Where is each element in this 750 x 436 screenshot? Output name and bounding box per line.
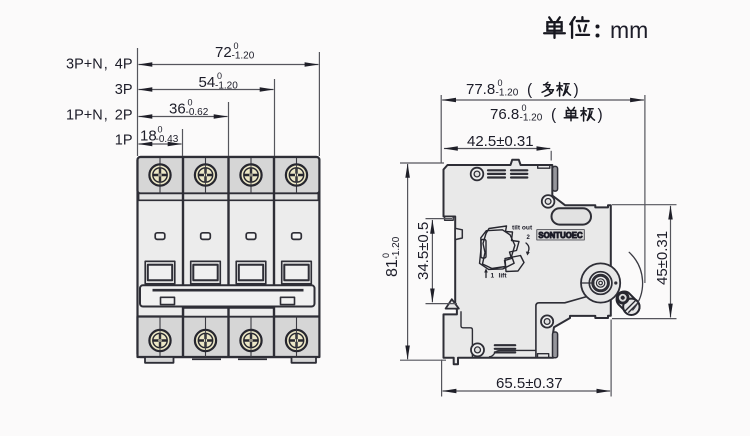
- svg-text:0: 0: [498, 78, 503, 88]
- svg-text:-1.20: -1.20: [391, 236, 402, 259]
- svg-text:18: 18: [140, 128, 157, 145]
- svg-text:-0.43: -0.43: [156, 134, 179, 145]
- svg-text:42.5±0.31: 42.5±0.31: [467, 133, 534, 150]
- svg-text:tilt out: tilt out: [512, 225, 533, 232]
- svg-text:-1.20: -1.20: [496, 88, 519, 99]
- svg-text:45±0.31: 45±0.31: [654, 231, 671, 285]
- svg-text:34.5±0.5: 34.5±0.5: [415, 222, 432, 280]
- svg-text:0: 0: [522, 103, 527, 113]
- svg-text:0: 0: [158, 125, 163, 135]
- svg-text:(: (: [551, 107, 557, 124]
- svg-text:76.8: 76.8: [490, 106, 519, 123]
- svg-text:lift: lift: [499, 273, 508, 280]
- svg-text:1: 1: [491, 273, 495, 280]
- svg-text:0: 0: [381, 253, 391, 258]
- svg-text:36: 36: [169, 101, 186, 118]
- svg-text:-1.20: -1.20: [232, 51, 255, 62]
- svg-text:54: 54: [199, 74, 216, 91]
- svg-text:1P+N,2P: 1P+N,2P: [66, 108, 132, 124]
- svg-text:0: 0: [217, 71, 222, 81]
- svg-text:77.8: 77.8: [466, 81, 495, 98]
- svg-text:): ): [598, 107, 603, 124]
- svg-text:3P: 3P: [115, 82, 133, 98]
- svg-text:3P+N,4P: 3P+N,4P: [66, 57, 132, 73]
- svg-text:-1.20: -1.20: [215, 81, 238, 92]
- svg-text:-1.20: -1.20: [520, 113, 543, 124]
- svg-text:0: 0: [188, 98, 193, 108]
- svg-text:72: 72: [215, 44, 232, 61]
- svg-text:81: 81: [384, 259, 401, 277]
- svg-text:SONTUOEC: SONTUOEC: [538, 231, 583, 240]
- svg-text:0: 0: [234, 41, 239, 51]
- svg-text:65.5±0.37: 65.5±0.37: [496, 375, 563, 392]
- svg-text:mm: mm: [610, 17, 648, 43]
- svg-text:-0.62: -0.62: [186, 107, 209, 118]
- svg-text:1P: 1P: [115, 133, 133, 149]
- svg-text:(: (: [527, 82, 533, 99]
- svg-text:): ): [574, 82, 579, 99]
